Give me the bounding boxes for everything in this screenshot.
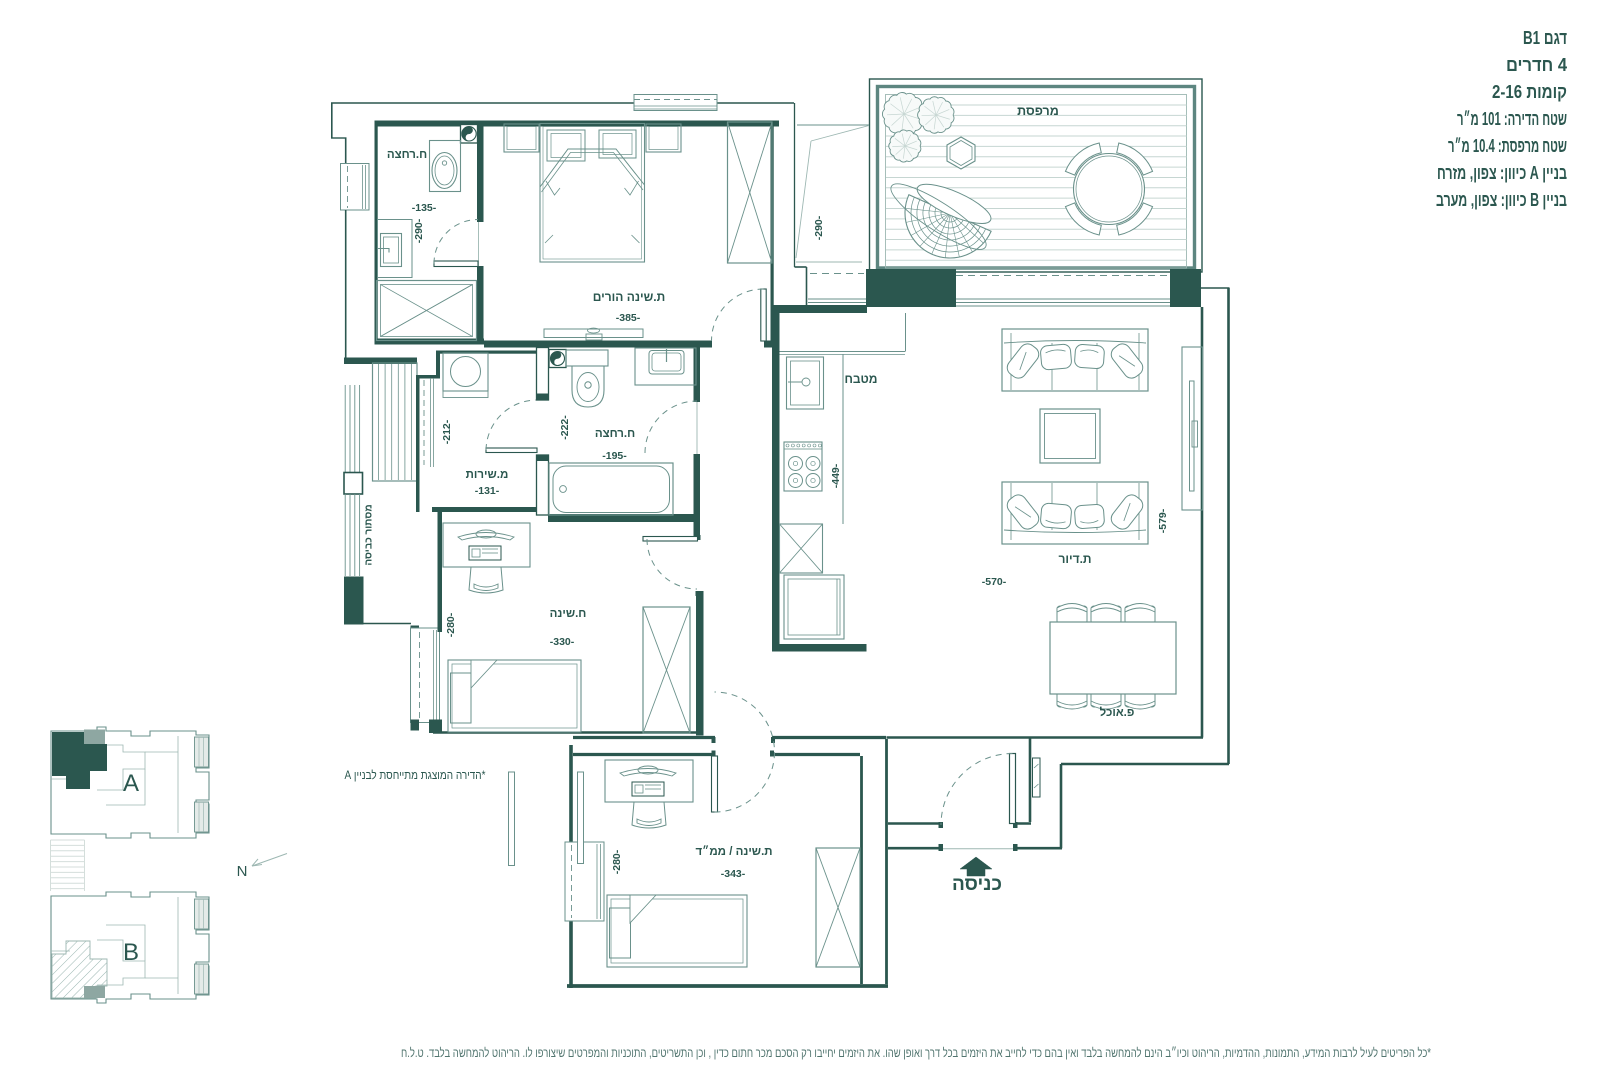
svg-text:-131-: -131- bbox=[475, 485, 500, 497]
svg-text:-385-: -385- bbox=[616, 312, 641, 324]
svg-text:פ.אוכל: פ.אוכל bbox=[1100, 706, 1135, 719]
svg-text:מטבח: מטבח bbox=[844, 372, 877, 386]
svg-text:N: N bbox=[237, 863, 248, 880]
svg-text:-570-: -570- bbox=[982, 576, 1007, 588]
svg-text:שטח מרפסת: 10.4 מ״ר: שטח מרפסת: 10.4 מ״ר bbox=[1448, 136, 1567, 156]
svg-text:ת.דיור: ת.דיור bbox=[1058, 552, 1091, 566]
svg-text:4 חדרים: 4 חדרים bbox=[1506, 55, 1567, 75]
svg-text:-212-: -212- bbox=[441, 419, 453, 444]
svg-text:-222-: -222- bbox=[559, 415, 571, 440]
svg-text:מרפסת: מרפסת bbox=[1017, 104, 1059, 118]
svg-text:דגם B1: דגם B1 bbox=[1523, 28, 1567, 48]
svg-text:-290-: -290- bbox=[413, 218, 425, 243]
svg-text:ת.שינה הורים: ת.שינה הורים bbox=[593, 290, 666, 304]
svg-text:כניסה: כניסה bbox=[952, 874, 1002, 895]
svg-text:-449-: -449- bbox=[830, 463, 842, 488]
svg-text:ח.רחצה: ח.רחצה bbox=[387, 149, 427, 161]
svg-text:ח.רחצה: ח.רחצה bbox=[595, 428, 635, 440]
svg-text:שטח הדירה: 101 מ״ר: שטח הדירה: 101 מ״ר bbox=[1457, 109, 1567, 129]
svg-text:-579-: -579- bbox=[1157, 508, 1169, 533]
svg-text:ת.שינה / ממ״ד: ת.שינה / ממ״ד bbox=[695, 845, 772, 858]
svg-text:-135-: -135- bbox=[412, 202, 437, 214]
svg-text:מסתור כביסה: מסתור כביסה bbox=[364, 504, 375, 565]
svg-text:-280-: -280- bbox=[611, 849, 623, 874]
svg-text:-330-: -330- bbox=[550, 636, 575, 648]
svg-text:בניין B כיוון: צפון, מערב: בניין B כיוון: צפון, מערב bbox=[1436, 190, 1567, 210]
svg-text:B: B bbox=[123, 939, 139, 966]
svg-text:בניין A כיוון: צפון, מזרח: בניין A כיוון: צפון, מזרח bbox=[1437, 163, 1567, 183]
svg-text:*כל הפריטים לעיל לרבות המידע,: *כל הפריטים לעיל לרבות המידע, התמונות, ה… bbox=[401, 1046, 1431, 1060]
svg-text:A: A bbox=[123, 770, 139, 797]
svg-text:קומות 2-16: קומות 2-16 bbox=[1492, 82, 1567, 102]
svg-text:-343-: -343- bbox=[721, 868, 746, 880]
svg-text:-280-: -280- bbox=[445, 612, 457, 637]
svg-text:*הדירה המוצגת מתייחסת לבניין A: *הדירה המוצגת מתייחסת לבניין A bbox=[345, 768, 486, 782]
svg-text:-195-: -195- bbox=[602, 450, 627, 462]
svg-text:-290-: -290- bbox=[813, 215, 825, 240]
svg-text:ח.שינה: ח.שינה bbox=[550, 608, 587, 620]
svg-text:מ.שירות: מ.שירות bbox=[466, 469, 509, 481]
